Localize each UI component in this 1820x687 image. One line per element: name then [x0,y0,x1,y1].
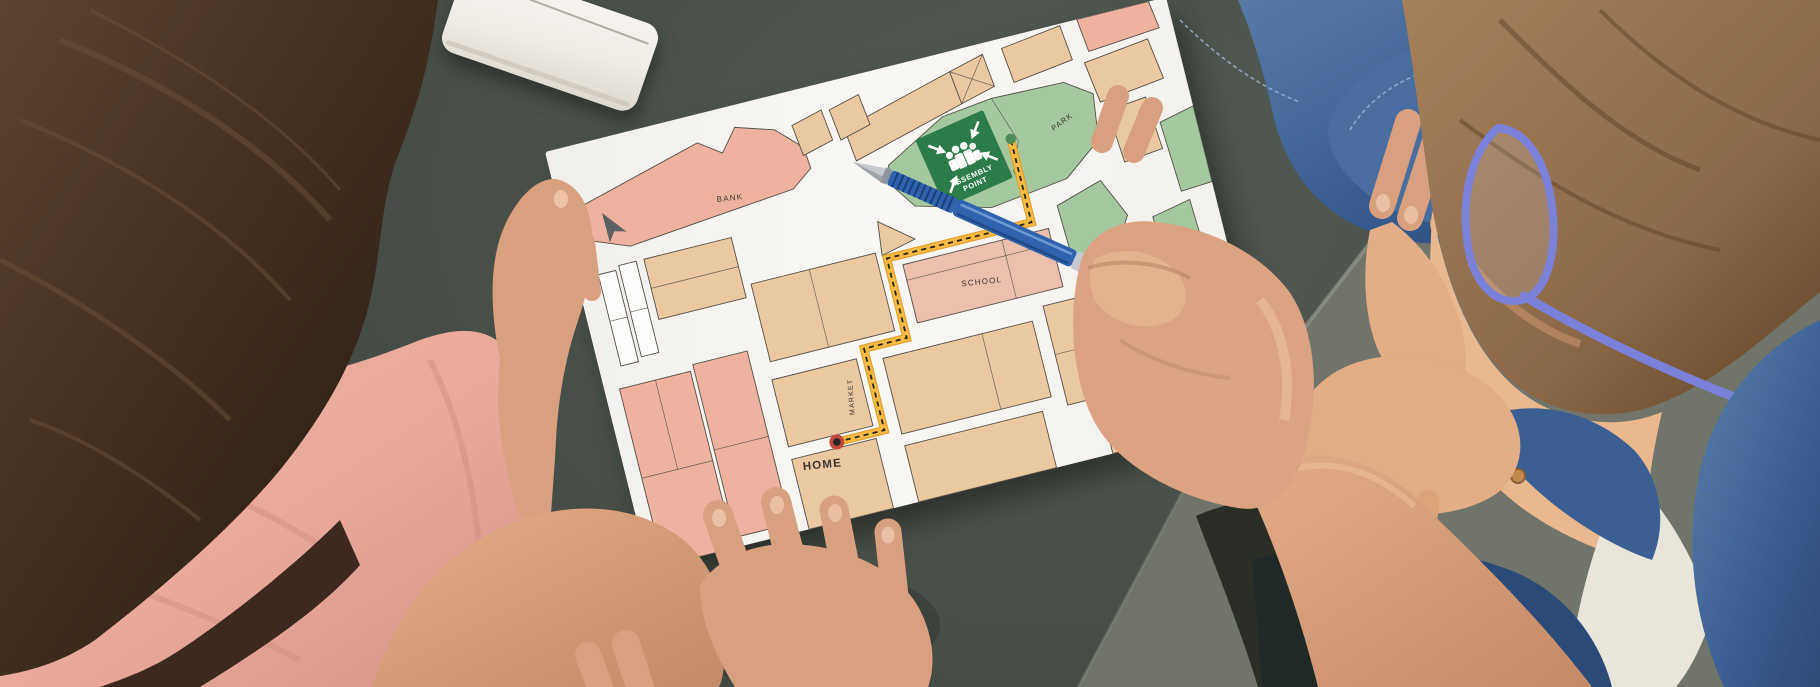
boy-peek-fingertips [1102,96,1152,152]
girl-fingernail [554,190,568,208]
girl [0,0,940,687]
pen-barrel-shade [957,214,1068,264]
pen-barrel-highlight [961,205,1072,255]
adult-hand [1073,221,1314,509]
people-layer [0,0,1820,687]
photo-scene: ASSEMBLY POINT BANK SCHOOL PARK MARKET H… [0,0,1820,687]
